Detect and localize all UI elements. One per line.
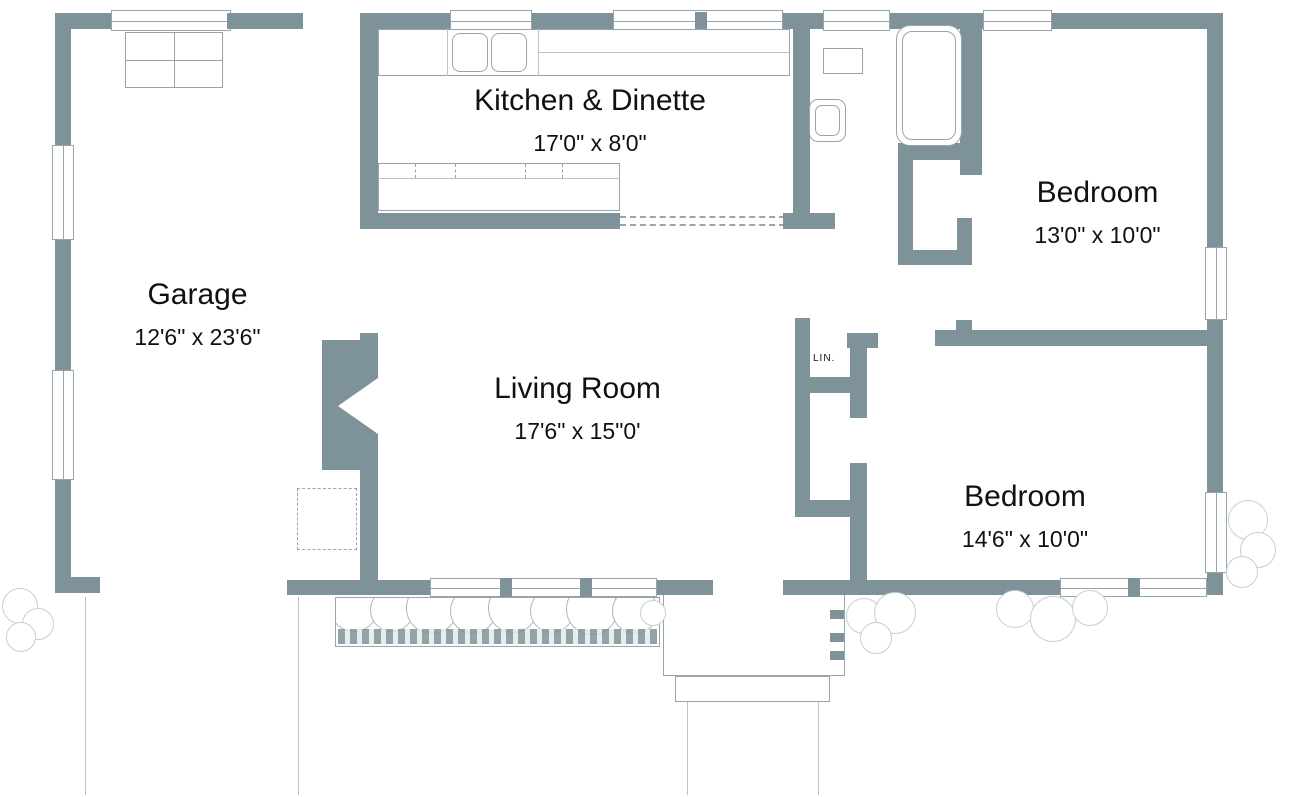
wall-segment [850,463,867,580]
cabinet-line [455,164,456,178]
wall-segment [795,318,810,517]
shrub [640,600,666,626]
bathtub [896,25,962,146]
wall-segment [227,13,303,29]
wall-segment [783,13,823,29]
kitchen-sink [491,33,527,72]
room-dimensions: 17'6" x 15"0' [420,418,735,444]
driveway-edge [298,597,299,795]
wall-segment [795,500,857,517]
front-step [675,676,830,702]
porch-step-tick [830,651,844,660]
shrub [860,622,892,654]
wall-segment [55,240,71,370]
window [430,578,657,597]
room-dimensions: 17'0" x 8'0" [395,130,785,156]
window [1205,492,1227,573]
bathroom-vanity [823,48,863,74]
window [52,145,74,240]
linen-closet-wall [810,377,852,393]
kitchen-sink [452,33,488,72]
wall-segment [1207,320,1223,492]
wall-segment [55,480,71,582]
wall-segment [793,29,810,213]
wall-segment [850,333,867,418]
wall-segment [360,213,620,229]
room-label-kitchen: Kitchen & Dinette 17'0" x 8'0" [395,84,785,156]
chimney-foundation-outline [297,488,357,550]
wall-segment [960,24,982,175]
counter-edge [538,52,790,53]
room-label-living-room: Living Room 17'6" x 15"0' [420,372,735,444]
counter-divider [447,29,448,76]
room-dimensions: 12'6" x 23'6" [95,324,300,350]
wall-segment [360,13,378,228]
room-name: Bedroom [890,480,1160,515]
shrub [1072,590,1108,626]
wall-segment [657,580,713,595]
shrub [1226,556,1258,588]
cabinet-line [525,164,526,178]
cased-opening [620,216,795,226]
window-mullion [500,578,512,597]
window [983,10,1052,31]
room-name: Garage [95,278,300,313]
shrub [6,622,36,652]
room-dimensions: 13'0" x 10'0" [960,222,1235,248]
window-mullion [580,578,592,597]
closet-wall [898,155,913,265]
wall-segment [1207,573,1223,595]
window [1205,247,1227,320]
front-door-opening [713,580,783,595]
room-name: Bedroom [960,176,1235,211]
room-label-bedroom-1: Bedroom 13'0" x 10'0" [960,176,1235,248]
window-mullion [695,12,707,30]
counter-edge [378,178,620,179]
porch-step-tick [830,633,844,642]
wall-segment [935,330,1207,346]
driveway-edge [85,597,86,795]
cabinet-line [415,164,416,178]
planter-box [335,597,660,647]
window [52,370,74,480]
wall-segment [1052,13,1213,29]
room-name: Living Room [420,372,735,407]
wall-segment [55,13,71,145]
window [823,10,890,31]
room-label-garage: Garage 12'6" x 23'6" [95,278,300,350]
window [111,10,231,31]
porch-step-tick [830,610,844,619]
wall-segment [956,320,972,330]
walkway-edge [818,702,819,795]
window-mullion [1128,578,1140,597]
cabinet-line [562,164,563,178]
room-dimensions: 14'6" x 10'0" [890,526,1160,552]
room-label-bedroom-2: Bedroom 14'6" x 10'0" [890,480,1160,552]
window [450,10,532,31]
wall-segment [287,580,430,595]
front-porch [663,595,845,676]
linen-closet-label: LIN. [813,353,835,364]
shrub [996,590,1034,628]
wall-segment [360,333,378,582]
wall-segment [532,13,613,29]
room-name: Kitchen & Dinette [395,84,785,119]
wall-segment [55,577,100,593]
workbench [125,32,223,88]
shrub [1030,596,1076,642]
wall-segment [783,213,835,229]
toilet [809,99,846,142]
floor-plan: LIN. [0,0,1307,797]
walkway-edge [687,702,688,795]
